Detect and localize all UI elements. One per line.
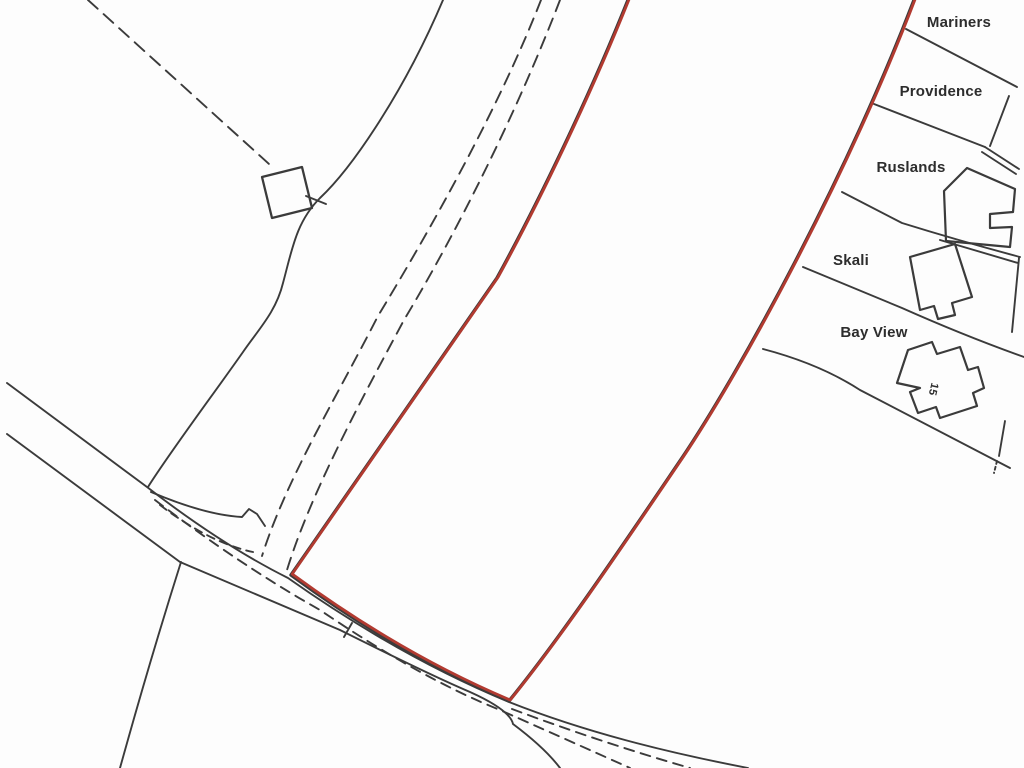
parcel-boundary-group	[291, 0, 915, 701]
label-bay-view: Bay View	[840, 324, 907, 341]
label-skali: Skali	[833, 252, 869, 269]
boundary-mariners-providence	[906, 29, 1017, 87]
house-outline-north	[944, 168, 1015, 247]
field-boundary-dashed-nw	[88, 0, 269, 164]
boundary-providence-ruslands	[874, 104, 985, 147]
label-house-15-group: 15	[926, 382, 941, 397]
boundary-rear-plots	[1012, 258, 1019, 332]
site-plan-map: Mariners Providence Ruslands Skali Bay V…	[0, 0, 1024, 768]
site-plan-canvas: Mariners Providence Ruslands Skali Bay V…	[0, 0, 1024, 768]
boundary-ruslands-skali	[842, 192, 1020, 257]
house-outline-skali	[910, 244, 972, 319]
house-outline-15	[897, 342, 984, 418]
boundary-short-spur-dash	[994, 461, 997, 473]
verge-dashed-se	[512, 709, 690, 768]
outbuilding-nw	[262, 167, 312, 218]
base-linework	[7, 0, 1024, 768]
field-boundary-curve	[148, 0, 443, 487]
plot-labels: Mariners Providence Ruslands Skali Bay V…	[833, 14, 991, 397]
boundary-bayview-south	[763, 349, 1010, 468]
field-boundary-south	[120, 562, 181, 768]
track-dashed-right	[287, 0, 560, 570]
label-providence: Providence	[900, 83, 983, 100]
label-mariners: Mariners	[927, 14, 991, 31]
boundary-short-spur-se	[999, 421, 1005, 456]
label-ruslands: Ruslands	[876, 159, 945, 176]
boundary-spur-ne	[990, 96, 1009, 146]
road-lower-edge	[7, 434, 560, 768]
junction-verge-line	[151, 492, 265, 526]
parcel-boundary-red	[292, 0, 915, 700]
road-upper-edge	[7, 383, 748, 768]
label-house-15: 15	[926, 382, 941, 397]
parcel-boundary-underlay	[291, 0, 914, 701]
